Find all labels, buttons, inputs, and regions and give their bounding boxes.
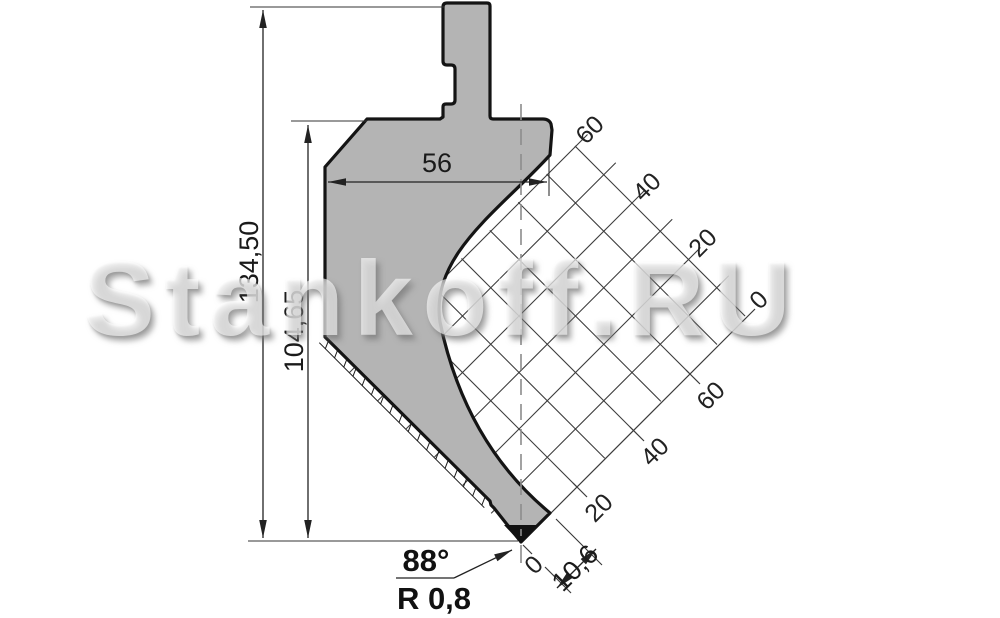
lower-axis-label-60: 60 — [691, 376, 730, 415]
punch-body-outline — [325, 3, 552, 542]
press-brake-punch-drawing: 134,50 104,65 56 10,6 88° R 0,8 60 40 20… — [0, 0, 1000, 618]
upper-axis-label-20: 20 — [683, 223, 722, 262]
body-width-label: 56 — [422, 148, 452, 178]
grid-zero-boundary-line — [523, 309, 755, 541]
tip-angle-label: 88° — [403, 543, 450, 578]
upper-axis-label-60: 60 — [570, 110, 609, 149]
angle-leader-arrow — [454, 550, 512, 578]
technical-drawing-canvas: 134,50 104,65 56 10,6 88° R 0,8 60 40 20… — [0, 0, 1000, 618]
tip-flat-width-label: 10,6 — [546, 539, 604, 597]
upper-axis-label-40: 40 — [627, 167, 666, 206]
working-height-label: 104,65 — [279, 290, 309, 373]
overall-height-label: 134,50 — [234, 221, 264, 304]
tip-zero-label: 0 — [519, 550, 549, 580]
tip-radius-label: R 0,8 — [397, 581, 471, 616]
lower-axis-label-20: 20 — [579, 488, 618, 527]
upper-axis-label-0: 0 — [744, 285, 774, 315]
